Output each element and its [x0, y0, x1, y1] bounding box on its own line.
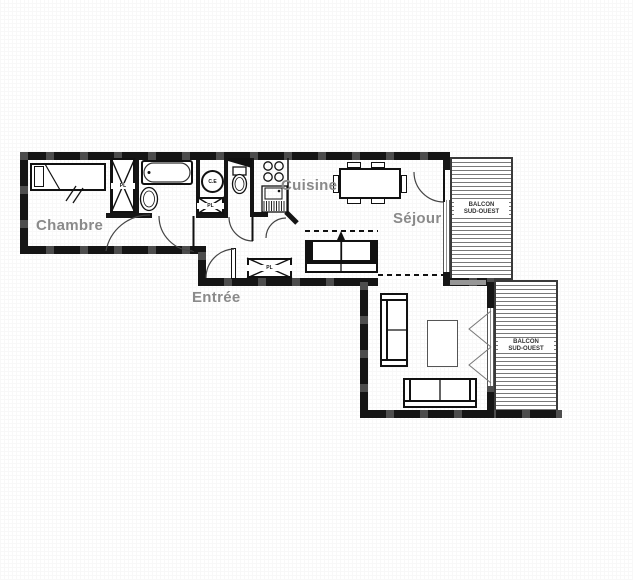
closet-bedroom-label: PL: [111, 183, 135, 189]
wall-hatch-marks: [66, 186, 83, 203]
door-arc-bedroom: [106, 215, 150, 251]
door-arc-kitchen: [266, 218, 286, 238]
door-arc-entry: [206, 249, 234, 278]
bathtub-basin: [144, 163, 190, 182]
closet-entry-label: PL: [247, 265, 292, 271]
plan-annotations: [0, 0, 633, 580]
room-label-sejour: Séjour: [393, 210, 441, 227]
bathroom-sink: [141, 188, 158, 211]
door-arc-wc: [229, 217, 253, 241]
room-label-chambre: Chambre: [36, 217, 103, 234]
wall-kitchen-diagonal: [286, 212, 297, 223]
bathtub-faucet: [148, 171, 151, 174]
unfold-arrow-icon: [337, 231, 345, 271]
door-arc-balcony: [414, 172, 444, 202]
toilet: [233, 167, 247, 194]
room-label-cuisine: Cuisine: [281, 177, 337, 194]
floor-plan: BALCON SUD-OUEST BALCON SUD-OUEST: [0, 0, 633, 580]
window-casement-triangles: [469, 311, 491, 383]
door-arc-bathroom: [159, 216, 194, 251]
closet-heater-label: PL: [197, 203, 224, 209]
bed-blanket-line: [45, 164, 60, 190]
water-heater-label: C.E: [201, 179, 224, 185]
room-label-entree: Entrée: [192, 289, 241, 306]
floor-plan-page: BALCON SUD-OUEST BALCON SUD-OUEST: [0, 0, 633, 580]
